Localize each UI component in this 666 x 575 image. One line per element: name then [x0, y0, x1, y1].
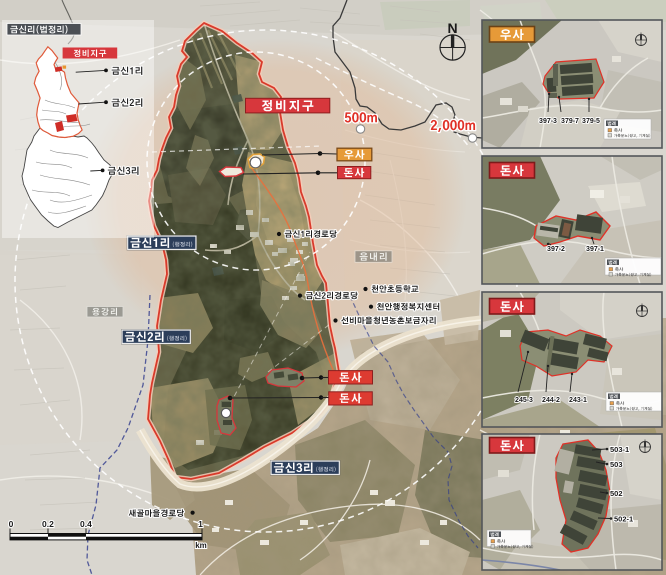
svg-text:245-3: 245-3 — [515, 397, 533, 404]
svg-text:244-2: 244-2 — [542, 397, 560, 404]
svg-text:N: N — [448, 20, 458, 36]
svg-text:1: 1 — [198, 519, 203, 529]
svg-text:503-1: 503-1 — [610, 445, 629, 454]
svg-text:397-3: 397-3 — [539, 118, 557, 125]
svg-text:502-1: 502-1 — [614, 515, 633, 524]
svg-text:0.2: 0.2 — [42, 519, 54, 529]
svg-text:243-1: 243-1 — [569, 397, 587, 404]
svg-text:397-1: 397-1 — [586, 246, 604, 253]
svg-text:503: 503 — [610, 460, 623, 469]
svg-text:379-5: 379-5 — [582, 118, 600, 125]
svg-text:km: km — [195, 541, 207, 550]
svg-text:502: 502 — [610, 489, 623, 498]
svg-text:0: 0 — [9, 519, 14, 529]
svg-text:0.4: 0.4 — [80, 519, 92, 529]
svg-text:379-7: 379-7 — [561, 118, 579, 125]
svg-text:397-2: 397-2 — [547, 246, 565, 253]
